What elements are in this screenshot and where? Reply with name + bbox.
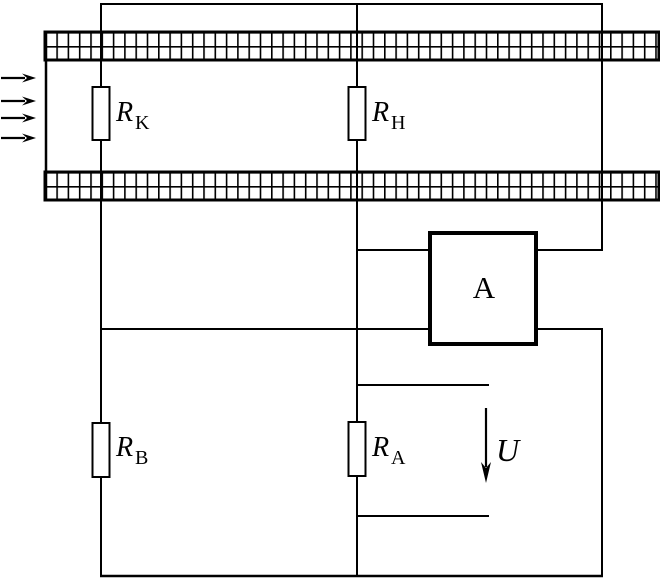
rh-label-subscript: H: [391, 112, 405, 134]
resistor-rk-body: [93, 87, 110, 140]
ra-label: R: [371, 432, 389, 463]
rh-label: R: [371, 97, 389, 128]
resistor-rk: R K: [93, 87, 151, 140]
output-voltage: U: [481, 408, 521, 483]
flow-arrow-icon: [1, 114, 36, 123]
duct-bottom-wall: [45, 172, 659, 200]
rk-label-subscript: K: [135, 112, 150, 134]
ra-label-subscript: A: [391, 447, 406, 469]
rk-label: R: [115, 97, 133, 128]
circuit-diagram: R K R H R B R A A U: [0, 0, 660, 579]
amplifier-label: A: [473, 270, 496, 305]
rb-label: R: [115, 432, 133, 463]
resistor-ra: R A: [349, 422, 407, 476]
resistor-ra-body: [349, 422, 366, 476]
flow-arrow-icon: [1, 134, 36, 143]
airflow-arrows: [1, 74, 36, 143]
voltage-label: U: [496, 432, 521, 468]
circuit-diagram-canvas: R K R H R B R A A U: [0, 0, 660, 579]
resistor-rh-body: [349, 87, 366, 140]
flow-arrow-icon: [1, 74, 36, 83]
flow-arrow-icon: [1, 97, 36, 106]
resistor-rb: R B: [93, 423, 149, 477]
down-arrow-icon: [481, 408, 491, 483]
rb-label-subscript: B: [135, 447, 148, 469]
resistor-rh: R H: [349, 87, 406, 140]
amplifier: A: [430, 233, 536, 344]
duct-top-wall: [45, 32, 659, 60]
resistor-rb-body: [93, 423, 110, 477]
